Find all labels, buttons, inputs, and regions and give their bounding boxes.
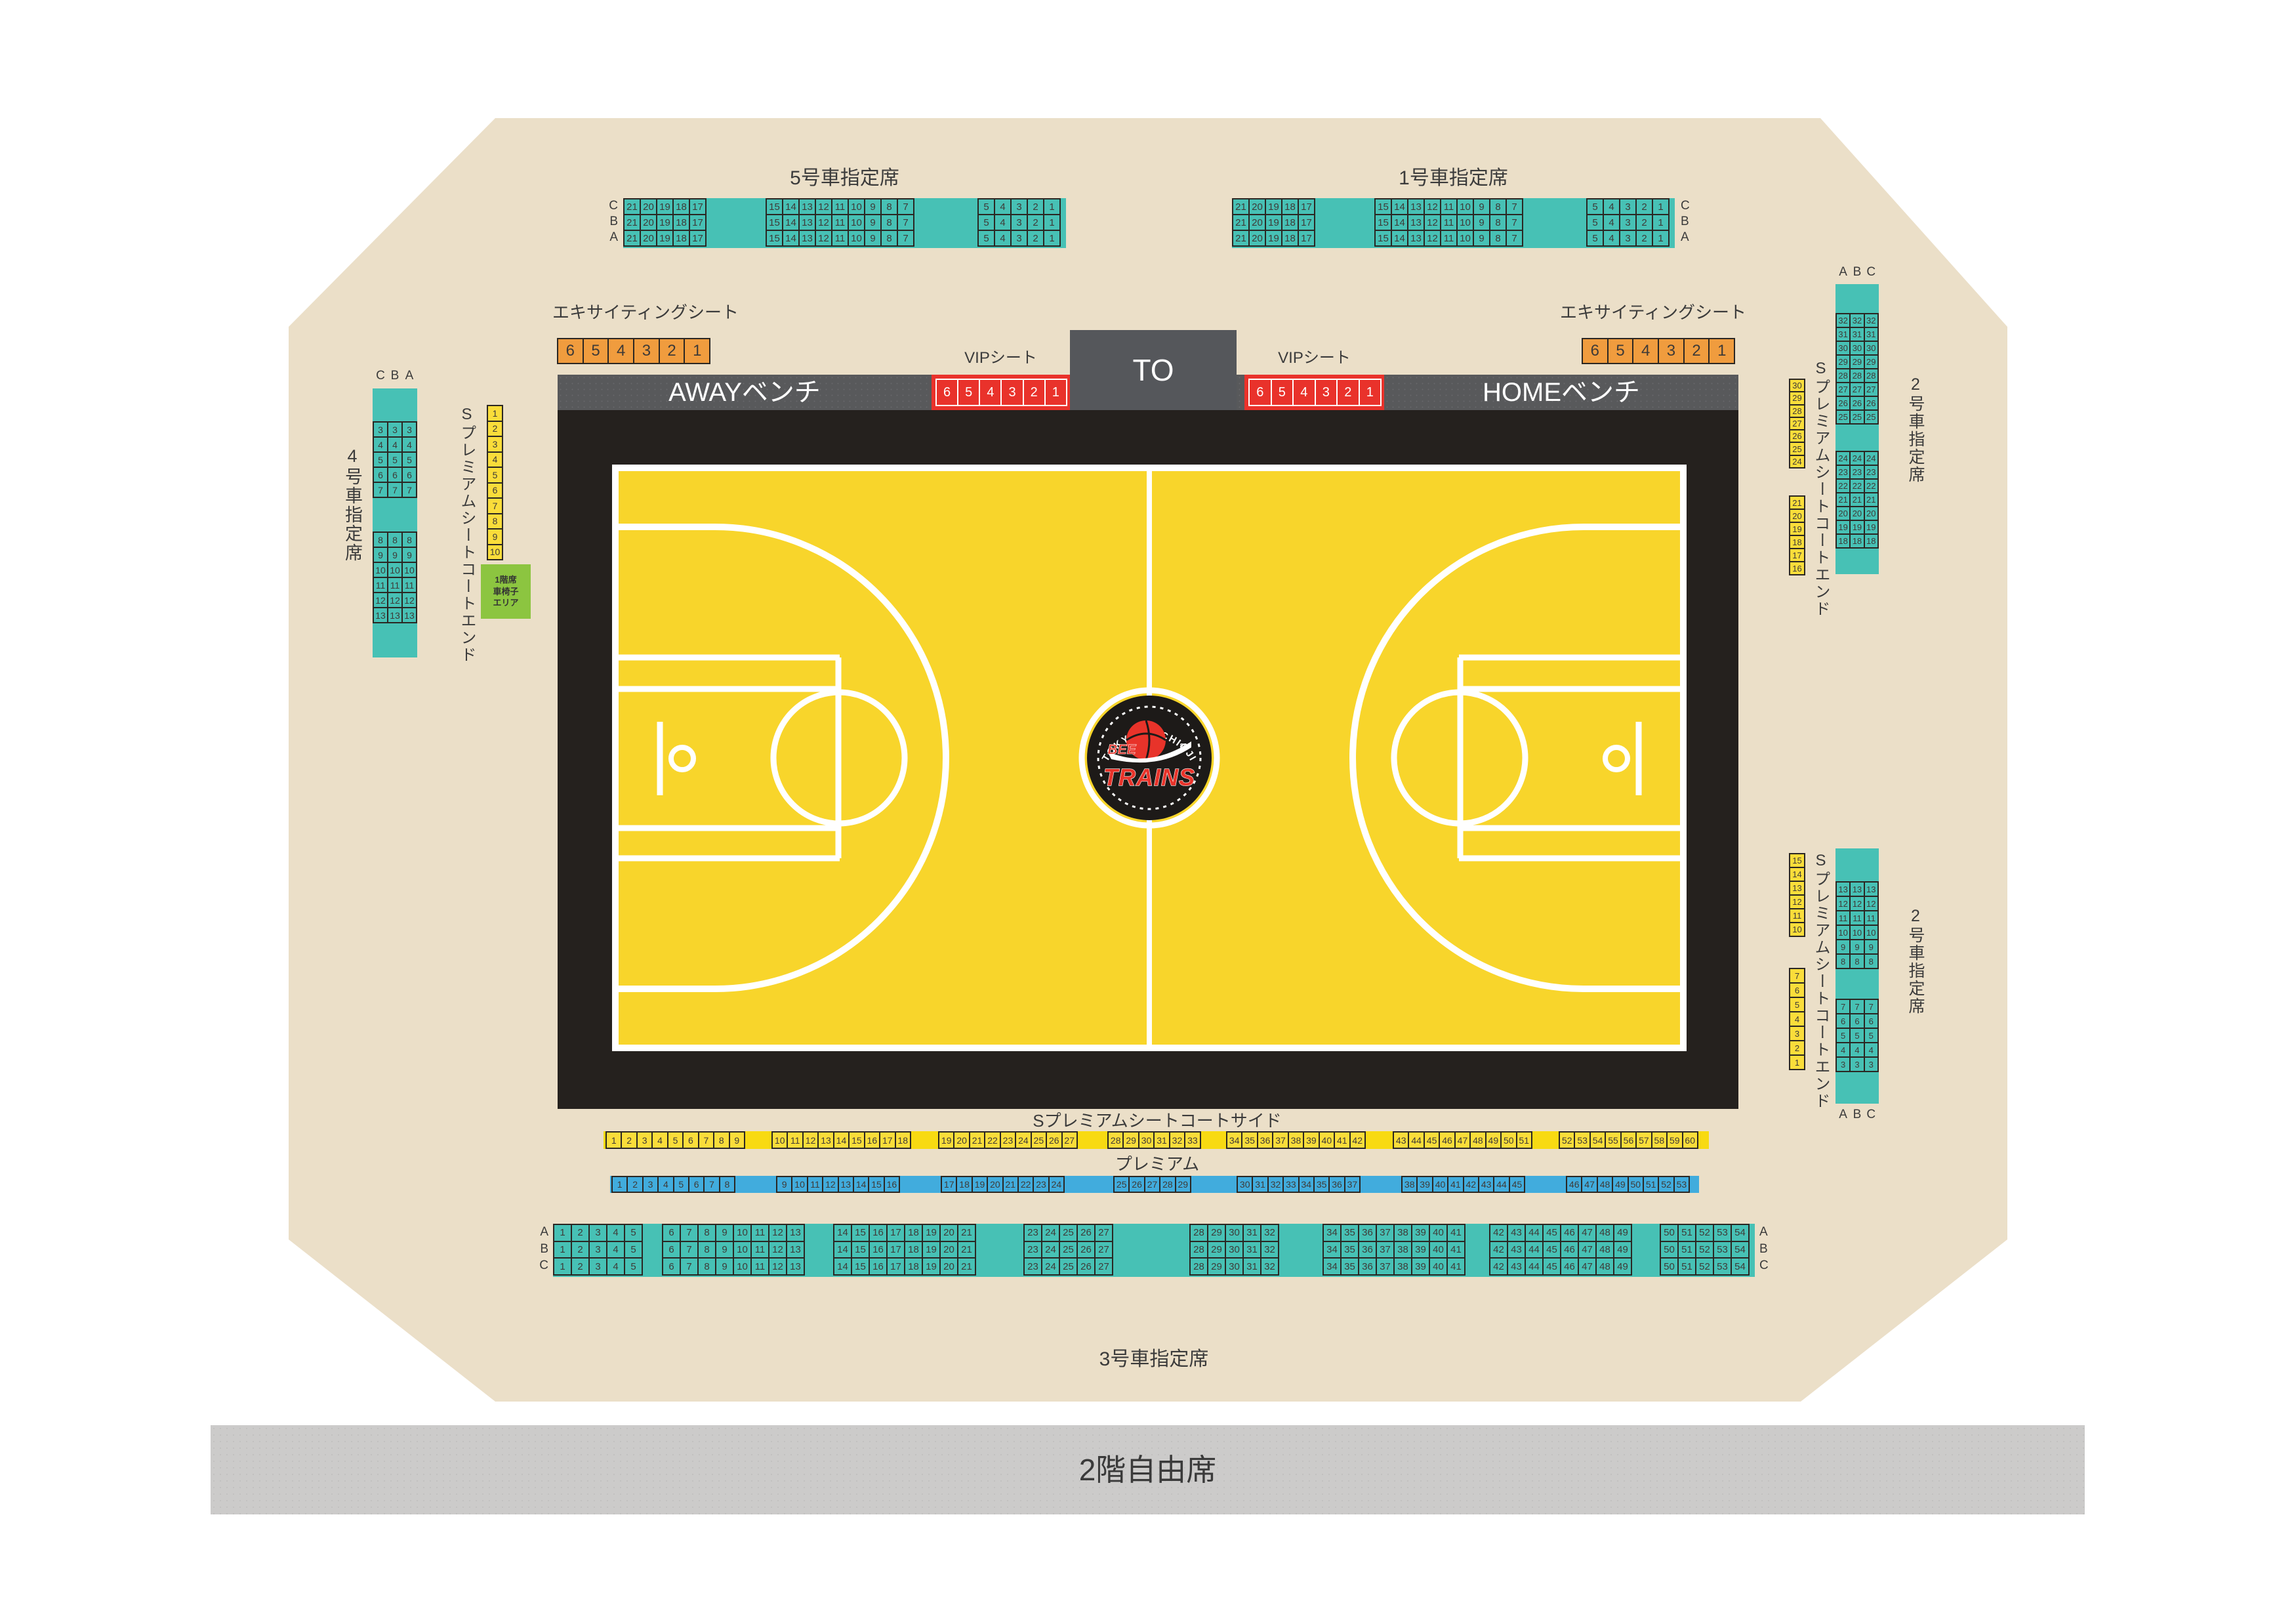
seat: 39 <box>1411 1241 1430 1259</box>
seat: 6 <box>557 338 584 364</box>
section-car5-group: 151413121110987 <box>766 214 914 231</box>
seat: 28 <box>1849 368 1864 383</box>
seat: 3 <box>1619 198 1637 215</box>
seat: 9 <box>715 1257 734 1276</box>
second-floor-bar: 2階自由席 <box>211 1425 2085 1514</box>
seat: 9 <box>864 198 882 215</box>
section-car1-group: 54321 <box>1586 198 1670 215</box>
seat: 59 <box>1666 1131 1683 1149</box>
section-car3-row-label: B <box>1759 1242 1786 1257</box>
seat: 26 <box>1789 429 1805 443</box>
seat: 26 <box>1046 1131 1062 1149</box>
section-car2-lower-row: 111111 <box>1835 910 1879 926</box>
exciting-left-seats: 654321 <box>557 338 710 364</box>
seat: 45 <box>1542 1241 1561 1259</box>
seat: 25 <box>1059 1224 1078 1242</box>
seat: 12 <box>768 1224 787 1242</box>
seat: 34 <box>1298 1176 1315 1193</box>
seat: 12 <box>802 1131 819 1149</box>
seat: 47 <box>1578 1241 1597 1259</box>
seat: 15 <box>766 198 783 215</box>
seat: 3 <box>1010 230 1028 247</box>
seat: 4 <box>1603 230 1620 247</box>
seat: 5 <box>1849 1028 1864 1043</box>
seat: 11 <box>831 230 849 247</box>
seat: 9 <box>1473 230 1490 247</box>
section-car1-group: 151413121110987 <box>1374 214 1523 231</box>
seat: 46 <box>1439 1131 1455 1149</box>
seat: 3 <box>588 1241 607 1259</box>
seat: 16 <box>869 1241 888 1259</box>
seat: 29 <box>1789 391 1805 405</box>
bench-home: HOMEベンチ <box>1384 375 1738 410</box>
seat: 24 <box>1864 451 1879 466</box>
seat: 33 <box>1282 1176 1299 1193</box>
seat: 8 <box>487 513 503 530</box>
section-car3-group: 2324252627 <box>1023 1257 1113 1276</box>
seat: 37 <box>1376 1257 1395 1276</box>
seat: 4 <box>606 1241 625 1259</box>
seat: 1 <box>553 1241 572 1259</box>
seat: 40 <box>1429 1241 1448 1259</box>
seat: 2 <box>1027 214 1044 231</box>
seat: 10 <box>1789 922 1805 937</box>
seat: 11 <box>1440 198 1458 215</box>
seat: 16 <box>869 1257 888 1276</box>
seat: 20 <box>939 1224 958 1242</box>
sp-end-right-upper-seats: 30292827262524 <box>1789 379 1805 468</box>
section-car4-row: 555 <box>373 451 417 468</box>
seat: 3 <box>373 421 388 438</box>
section-car3-group: 678910111213 <box>662 1224 805 1242</box>
premium-group: 3031323334353637 <box>1237 1176 1361 1193</box>
seat: 13 <box>798 198 816 215</box>
seat: 25 <box>1031 1131 1047 1149</box>
section-car1-group: 2120191817 <box>1232 214 1315 231</box>
seat: 13 <box>786 1257 805 1276</box>
seat: 46 <box>1560 1224 1579 1242</box>
seat: 11 <box>831 198 849 215</box>
seat: 5 <box>673 1176 689 1193</box>
seat: 10 <box>733 1224 752 1242</box>
section-car5-group: 54321 <box>977 198 1061 215</box>
seat: 1 <box>1652 214 1670 231</box>
seat: 34 <box>1322 1224 1342 1242</box>
seat: 32 <box>1835 313 1851 328</box>
seat: 27 <box>1061 1131 1078 1149</box>
second-floor-label: 2階自由席 <box>211 1425 2085 1514</box>
seat: 5 <box>1271 379 1294 406</box>
seat: 6 <box>1835 1013 1851 1029</box>
seat: 7 <box>1849 999 1864 1014</box>
seat: 28 <box>1189 1257 1208 1276</box>
seat: 10 <box>848 198 865 215</box>
seat: 1 <box>553 1257 572 1276</box>
seat: 35 <box>1340 1257 1359 1276</box>
table-officials-label: TO <box>1132 352 1174 388</box>
section-car1-group: 151413121110987 <box>1374 230 1523 247</box>
seat: 32 <box>1260 1257 1279 1276</box>
seat: 4 <box>994 198 1012 215</box>
seat: 29 <box>1207 1257 1226 1276</box>
seat: 39 <box>1411 1257 1430 1276</box>
seat: 21 <box>1849 492 1864 507</box>
seat: 56 <box>1620 1131 1637 1149</box>
seat: 19 <box>656 214 674 231</box>
seat: 13 <box>786 1224 805 1242</box>
seat: 51 <box>1643 1176 1659 1193</box>
seat: 8 <box>1835 953 1851 969</box>
section-car4-row: 999 <box>373 547 417 563</box>
seat: 10 <box>373 562 388 578</box>
seat: 5 <box>487 467 503 484</box>
seat: 26 <box>1076 1257 1096 1276</box>
seat: 4 <box>657 1176 674 1193</box>
seat: 6 <box>682 1131 699 1149</box>
sp-side-group: 525354555657585960 <box>1559 1131 1698 1149</box>
seat: 4 <box>387 436 403 453</box>
seat: 32 <box>1267 1176 1284 1193</box>
seat: 50 <box>1628 1176 1644 1193</box>
seat: 30 <box>1138 1131 1155 1149</box>
title-car3: 3号車指定席 <box>957 1343 1351 1371</box>
section-car1-group: 54321 <box>1586 230 1670 247</box>
seat: 2 <box>1683 338 1710 364</box>
seat: 37 <box>1376 1241 1395 1259</box>
seat: 3 <box>1619 230 1637 247</box>
seat: 10 <box>791 1176 808 1193</box>
seat: 55 <box>1605 1131 1621 1149</box>
section-car4-row: 131313 <box>373 607 417 623</box>
seat: 1 <box>487 405 503 422</box>
seat: 2 <box>1635 230 1653 247</box>
seat: 18 <box>904 1241 923 1259</box>
seat: 27 <box>1144 1176 1160 1193</box>
seat: 20 <box>1864 506 1879 521</box>
seat: 18 <box>1835 533 1851 549</box>
seat: 11 <box>387 577 403 593</box>
section-car2-lower-col-label: C <box>1864 1108 1879 1122</box>
seat: 19 <box>922 1257 941 1276</box>
section-car5-group: 2120191817 <box>623 214 707 231</box>
seat: 17 <box>1298 214 1315 231</box>
seat: 14 <box>833 1131 850 1149</box>
section-car2-lower-row: 555 <box>1835 1028 1879 1043</box>
section-car3-group: 2324252627 <box>1023 1224 1113 1242</box>
section-car3-group: 1415161718192021 <box>833 1241 976 1259</box>
seat: 49 <box>1613 1257 1632 1276</box>
logo-num: 802 <box>1180 743 1191 750</box>
seat: 48 <box>1595 1241 1614 1259</box>
seat: 17 <box>689 214 707 231</box>
title-car2-upper: 2号車指定席 <box>1904 375 1927 484</box>
section-car3-group: 678910111213 <box>662 1241 805 1259</box>
seat: 26 <box>1849 396 1864 411</box>
seat: 3 <box>1789 1026 1805 1041</box>
seat: 9 <box>715 1224 734 1242</box>
seat: 10 <box>1835 925 1851 940</box>
seat: 3 <box>1315 379 1338 406</box>
seat: 47 <box>1578 1224 1597 1242</box>
seat: 34 <box>1322 1257 1342 1276</box>
seat: 43 <box>1507 1224 1526 1242</box>
seat: 7 <box>698 1131 714 1149</box>
seat: 18 <box>1849 533 1864 549</box>
seat: 2 <box>1027 230 1044 247</box>
label-exciting-right: エキサイティングシート <box>1555 299 1752 323</box>
seat: 16 <box>869 1224 888 1242</box>
seat: 9 <box>1473 198 1490 215</box>
seat: 1 <box>1359 379 1382 406</box>
seat: 20 <box>640 214 657 231</box>
seat: 13 <box>798 214 816 231</box>
label-sp-side: Sプレミアムシートコートサイド <box>960 1108 1354 1132</box>
seat: 15 <box>1374 230 1392 247</box>
seat: 19 <box>922 1241 941 1259</box>
seat: 42 <box>1349 1131 1366 1149</box>
seat: 25 <box>1113 1176 1130 1193</box>
seat: 11 <box>1864 910 1879 926</box>
seat: 21 <box>623 214 641 231</box>
seat: 52 <box>1559 1131 1575 1149</box>
section-car3-group: 3435363738394041 <box>1322 1257 1466 1276</box>
seat: 43 <box>1507 1257 1526 1276</box>
seat: 44 <box>1525 1241 1544 1259</box>
seat: 14 <box>782 214 800 231</box>
seat: 29 <box>1207 1241 1226 1259</box>
seat: 46 <box>1560 1257 1579 1276</box>
seat: 18 <box>904 1257 923 1276</box>
seat: 18 <box>956 1176 972 1193</box>
seat: 7 <box>373 482 388 498</box>
sp-end-right-upper-seats: 212019181716 <box>1789 495 1805 575</box>
seat: 9 <box>776 1176 792 1193</box>
label-sp-end-right-upper: Sプレミアムシートコートエンド <box>1809 360 1832 617</box>
seat: 60 <box>1682 1131 1698 1149</box>
seat: 18 <box>1864 533 1879 549</box>
section-car4-row: 444 <box>373 436 417 453</box>
seat: 6 <box>662 1241 681 1259</box>
seat: 18 <box>895 1131 911 1149</box>
seat: 31 <box>1242 1224 1261 1242</box>
seat: 26 <box>1835 396 1851 411</box>
seat: 17 <box>941 1176 957 1193</box>
seat: 12 <box>1864 896 1879 911</box>
section-car3-group: 2829303132 <box>1189 1224 1279 1242</box>
seat: 1 <box>1652 198 1670 215</box>
seat: 11 <box>1789 908 1805 923</box>
section-car5-group: 54321 <box>977 230 1061 247</box>
seat: 35 <box>1340 1241 1359 1259</box>
section-car3-group: 3435363738394041 <box>1322 1241 1466 1259</box>
seat: 52 <box>1695 1257 1714 1276</box>
seat: 41 <box>1447 1176 1464 1193</box>
seat: 18 <box>672 198 690 215</box>
seat: 14 <box>833 1241 852 1259</box>
seat: 8 <box>713 1131 729 1149</box>
seat: 43 <box>1478 1176 1494 1193</box>
seat: 51 <box>1677 1224 1696 1242</box>
seat: 32 <box>1260 1224 1279 1242</box>
seat: 8 <box>1864 953 1879 969</box>
seat: 3 <box>1010 198 1028 215</box>
section-car5-row-label: A <box>589 230 618 245</box>
sp-end-right-lower-seats: 151413121110 <box>1789 853 1805 937</box>
seat: 1 <box>1044 379 1067 406</box>
seat: 16 <box>1789 561 1805 575</box>
seat: 20 <box>1248 230 1266 247</box>
vip-left-block-seats: 654321 <box>935 379 1067 406</box>
seat: 6 <box>487 482 503 499</box>
vip-right-block-seats: 654321 <box>1248 379 1382 406</box>
seat: 26 <box>1076 1224 1096 1242</box>
seat: 30 <box>1237 1176 1253 1193</box>
seat: 52 <box>1658 1176 1674 1193</box>
seat: 3 <box>387 421 403 438</box>
seat: 57 <box>1635 1131 1652 1149</box>
seat: 50 <box>1660 1241 1679 1259</box>
section-car2-upper-row: 232323 <box>1835 465 1879 480</box>
seat: 25 <box>1789 442 1805 455</box>
seat: 51 <box>1516 1131 1532 1149</box>
seat: 45 <box>1424 1131 1440 1149</box>
seat: 12 <box>768 1257 787 1276</box>
section-car3-row-label: A <box>522 1225 548 1239</box>
seat: 30 <box>1225 1257 1244 1276</box>
seat: 14 <box>782 198 800 215</box>
section-car2-lower-row: 101010 <box>1835 925 1879 940</box>
seat: 13 <box>798 230 816 247</box>
seat: 36 <box>1358 1224 1377 1242</box>
seat: 45 <box>1542 1224 1561 1242</box>
title-car4: 4号車指定席 <box>340 446 365 562</box>
seat: 12 <box>1424 214 1441 231</box>
section-car2-upper-row: 191919 <box>1835 520 1879 535</box>
seat: 19 <box>972 1176 988 1193</box>
seat: 3 <box>636 1131 653 1149</box>
sp-side-group: 123456789 <box>605 1131 745 1149</box>
seat: 12 <box>1789 894 1805 909</box>
seat: 10 <box>401 562 417 578</box>
section-car4-row: 333 <box>373 421 417 438</box>
seat: 28 <box>1864 368 1879 383</box>
seat: 23 <box>1849 465 1864 480</box>
section-car2-upper-row: 181818 <box>1835 533 1879 549</box>
seat: 13 <box>817 1131 834 1149</box>
seat: 51 <box>1677 1241 1696 1259</box>
seat: 8 <box>1489 198 1507 215</box>
seat: 40 <box>1429 1224 1448 1242</box>
seat: 3 <box>633 338 660 364</box>
sp-side-group: 343536373839404142 <box>1226 1131 1366 1149</box>
seat: 33 <box>1184 1131 1200 1149</box>
seat: 48 <box>1595 1257 1614 1276</box>
seat: 5 <box>1586 230 1604 247</box>
seat: 10 <box>848 230 865 247</box>
section-car1-group: 2120191817 <box>1232 198 1315 215</box>
section-car4-col-label: B <box>387 369 403 383</box>
seat: 17 <box>1298 230 1315 247</box>
seat: 42 <box>1463 1176 1479 1193</box>
logo-bee: BEE <box>1107 742 1136 757</box>
section-car5-row-label: B <box>589 215 618 229</box>
seat: 20 <box>987 1176 1003 1193</box>
seat: 44 <box>1525 1224 1544 1242</box>
seat: 8 <box>880 198 898 215</box>
seat: 15 <box>851 1224 870 1242</box>
seat: 6 <box>662 1224 681 1242</box>
label-sp-end-right-lower: Sプレミアムシートコートエンド <box>1809 852 1832 1110</box>
seat: 17 <box>886 1257 905 1276</box>
section-car2-upper-row: 323232 <box>1835 313 1879 328</box>
seat: 7 <box>680 1241 699 1259</box>
seat: 16 <box>884 1176 900 1193</box>
seat: 12 <box>373 592 388 608</box>
section-car3-row-label: C <box>1759 1259 1786 1273</box>
seat: 6 <box>1789 982 1805 998</box>
seat: 34 <box>1322 1241 1342 1259</box>
seat: 40 <box>1432 1176 1448 1193</box>
seat: 2 <box>571 1224 590 1242</box>
seat: 29 <box>1849 354 1864 369</box>
seat: 35 <box>1241 1131 1258 1149</box>
seat: 50 <box>1660 1257 1679 1276</box>
seat: 47 <box>1581 1176 1597 1193</box>
section-car1-group: 2120191817 <box>1232 230 1315 247</box>
seat: 1 <box>1043 198 1061 215</box>
section-car4-row: 121212 <box>373 592 417 608</box>
section-car3-group: 2829303132 <box>1189 1241 1279 1259</box>
seat: 41 <box>1446 1241 1466 1259</box>
seat: 6 <box>401 467 417 483</box>
seat: 47 <box>1578 1257 1597 1276</box>
premium-group: 4647484950515253 <box>1566 1176 1690 1193</box>
seat: 42 <box>1489 1257 1508 1276</box>
seat: 20 <box>640 230 657 247</box>
seat: 49 <box>1485 1131 1502 1149</box>
seat: 4 <box>1632 338 1659 364</box>
section-car2-upper-row: 242424 <box>1835 451 1879 466</box>
seat: 34 <box>1226 1131 1242 1149</box>
seat: 1 <box>1789 1054 1805 1070</box>
seat: 2 <box>659 338 686 364</box>
seat: 31 <box>1252 1176 1268 1193</box>
seat: 5 <box>624 1241 643 1259</box>
seat: 21 <box>623 230 641 247</box>
section-car3-group: 12345 <box>553 1241 643 1259</box>
seat: 21 <box>1232 230 1250 247</box>
section-car3-row-label: A <box>1759 1225 1786 1239</box>
seat: 9 <box>1849 939 1864 955</box>
premium-group: 1718192021222324 <box>941 1176 1065 1193</box>
seat: 53 <box>1673 1176 1690 1193</box>
seat: 20 <box>939 1241 958 1259</box>
seat: 27 <box>1849 382 1864 397</box>
seat: 2 <box>1789 1040 1805 1056</box>
seat: 5 <box>1835 1028 1851 1043</box>
seat: 32 <box>1260 1241 1279 1259</box>
seat: 53 <box>1713 1241 1732 1259</box>
seat: 4 <box>1292 379 1316 406</box>
seat: 11 <box>750 1241 769 1259</box>
seat: 5 <box>977 230 995 247</box>
seat: 41 <box>1334 1131 1350 1149</box>
section-car2-lower-row: 777 <box>1835 999 1879 1014</box>
seat: 7 <box>1789 968 1805 984</box>
seat: 4 <box>606 1257 625 1276</box>
seat: 30 <box>1789 379 1805 392</box>
seat: 53 <box>1713 1257 1732 1276</box>
